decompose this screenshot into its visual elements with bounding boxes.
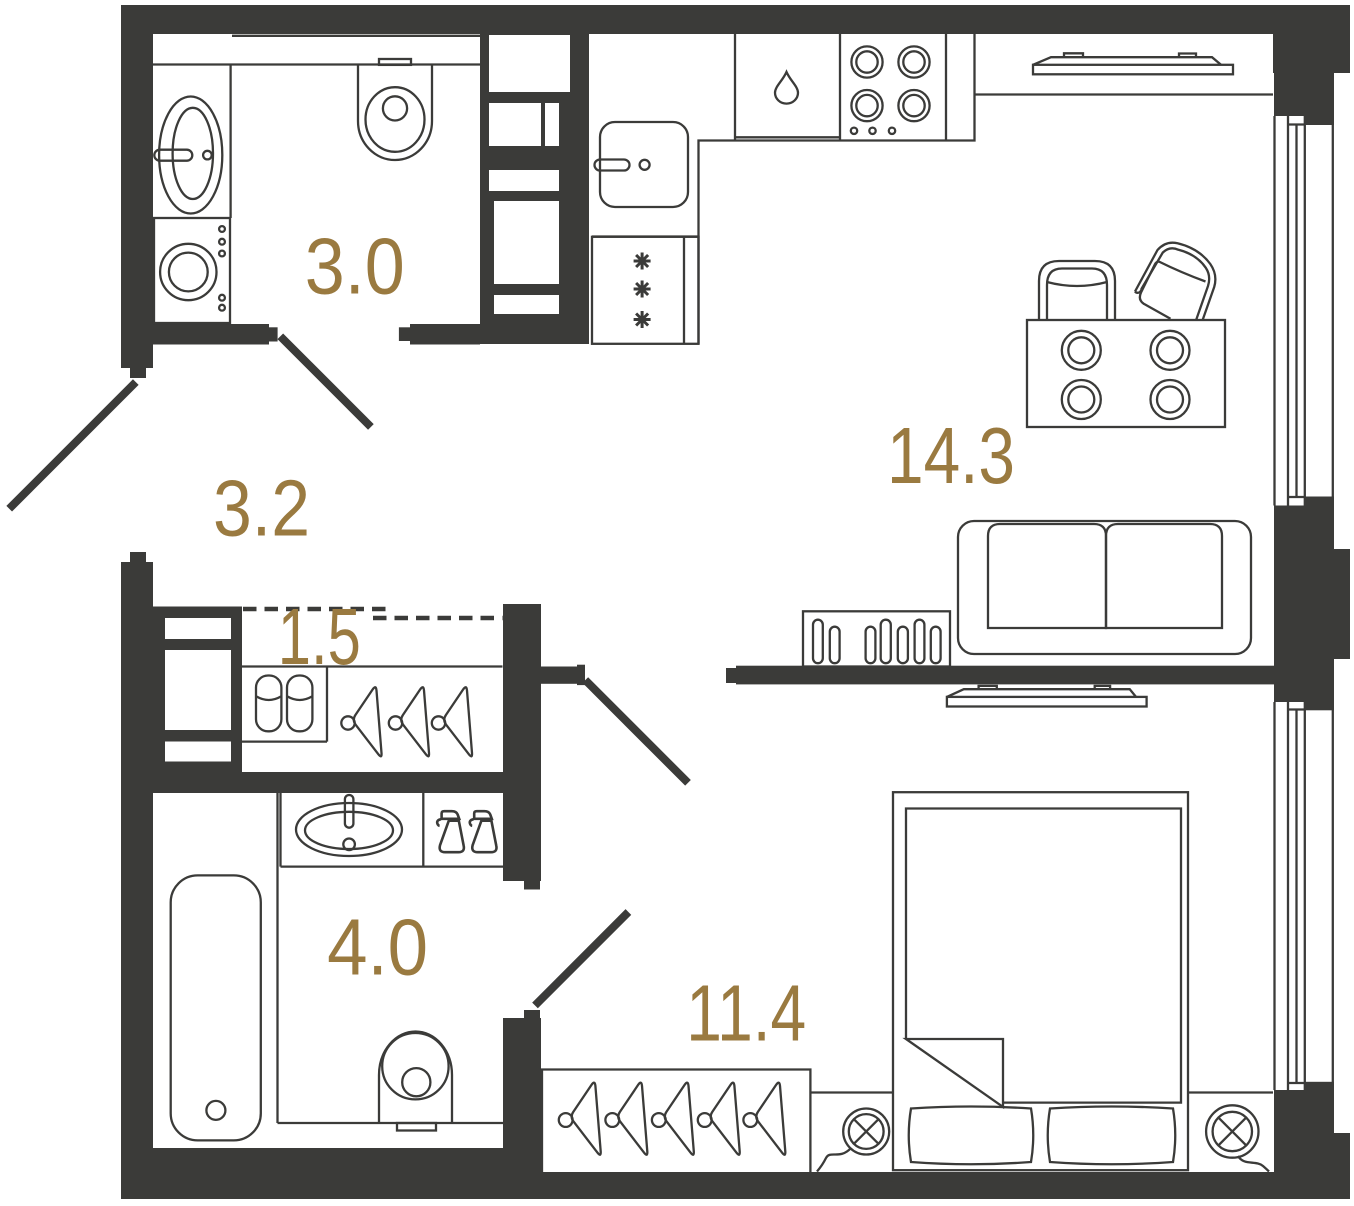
svg-text:3.2: 3.2 [213,464,310,553]
svg-text:4.0: 4.0 [327,903,428,992]
svg-text:3.0: 3.0 [305,222,405,311]
svg-text:11.4: 11.4 [686,968,806,1057]
svg-text:1.5: 1.5 [278,592,361,681]
svg-text:14.3: 14.3 [887,411,1015,500]
